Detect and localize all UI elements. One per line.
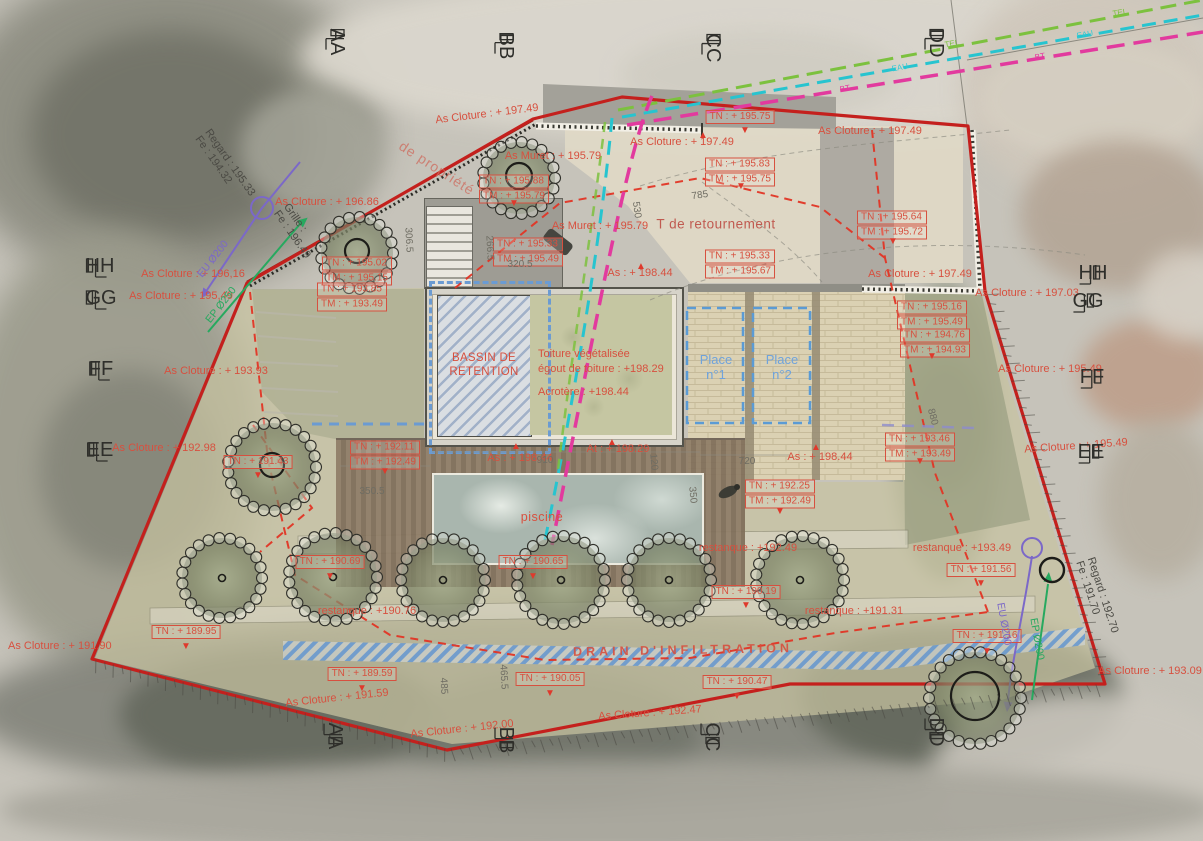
section-marker-bb-bottom: BB: [496, 727, 516, 754]
section-marker-cc-top: CC: [703, 34, 723, 63]
section-flag-icon: [1078, 442, 1100, 466]
section-marker-ee-left: EE: [87, 440, 114, 460]
section-flag-icon: [323, 29, 347, 51]
section-marker-ff-left: FF: [89, 359, 113, 379]
section-marker-ff-right: FF: [1080, 367, 1104, 387]
section-marker-bb-top: BB: [496, 33, 516, 60]
section-marker-aa-bottom: AA: [325, 723, 345, 750]
section-flag-icon: [85, 288, 107, 312]
section-flag-icon: [86, 256, 108, 280]
section-marker-hh-right: HH: [1079, 263, 1108, 283]
site-plan: As Cloture : + 197.49As Cloture : + 197.…: [0, 0, 1203, 841]
section-flag-icon: [492, 727, 516, 749]
section-marker-gg-right: GG: [1072, 291, 1103, 311]
section-flag-icon: [699, 34, 723, 56]
section-flag-icon: [89, 359, 111, 383]
section-flag-icon: [1080, 367, 1102, 391]
section-flag-icon: [922, 29, 946, 51]
section-flag-icon: [1079, 263, 1101, 287]
section-marker-layer: AABBCCDDHHGGFFEEHHGGFFEEAABBCCDD: [0, 0, 1203, 841]
section-marker-gg-left: GG: [85, 288, 116, 308]
section-flag-icon: [321, 723, 345, 745]
section-marker-ee-right: EE: [1078, 442, 1105, 462]
section-flag-icon: [1072, 291, 1094, 315]
section-marker-cc-bottom: CC: [702, 723, 722, 752]
section-flag-icon: [698, 723, 722, 745]
section-marker-aa-top: AA: [327, 29, 347, 56]
section-flag-icon: [87, 440, 109, 464]
section-flag-icon: [922, 718, 946, 740]
section-marker-hh-left: HH: [86, 256, 115, 276]
section-flag-icon: [492, 33, 516, 55]
section-marker-dd-bottom: DD: [926, 718, 946, 747]
section-marker-dd-top: DD: [926, 29, 946, 58]
